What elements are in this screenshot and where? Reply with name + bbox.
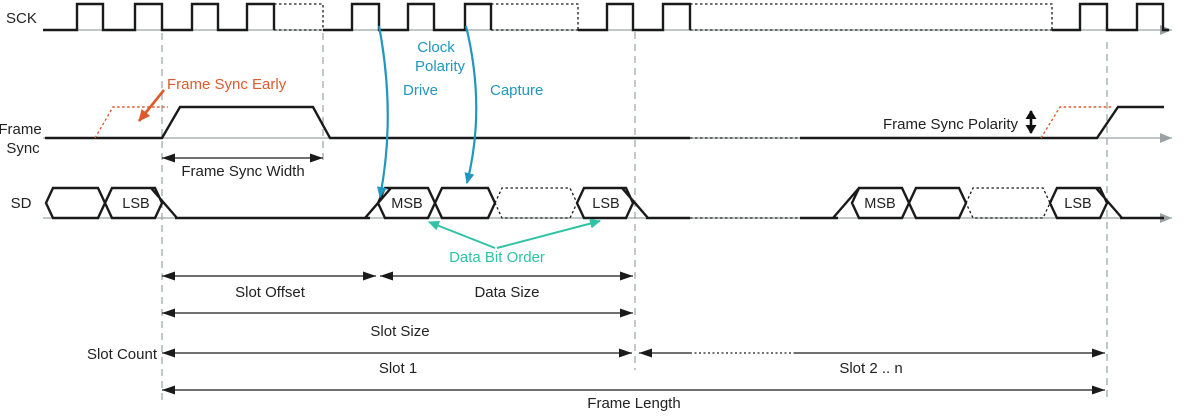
frame-sync-label-line1: Frame (0, 121, 42, 138)
timing-diagram: SCK Frame Sync SD Frame Sync Early Clock… (0, 0, 1184, 416)
sd-label: SD (11, 195, 32, 212)
sd-cell-slot1-lsb: LSB (592, 196, 619, 212)
guide-lines (162, 32, 1107, 400)
frame-length-label: Frame Length (587, 395, 680, 412)
clock-polarity-label-line2: Polarity (415, 58, 466, 75)
data-bit-order-label: Data Bit Order (449, 249, 545, 266)
slot1-label: Slot 1 (379, 360, 417, 377)
drive-edge-arrow (379, 26, 388, 197)
data-size-label: Data Size (474, 284, 539, 301)
sck-waveform (43, 4, 1169, 30)
frame-sync-width-label: Frame Sync Width (181, 163, 304, 180)
clock-polarity-label-line1: Clock (417, 39, 455, 56)
capture-edge-arrow (466, 26, 476, 183)
drive-label: Drive (403, 82, 438, 99)
labels: SCK Frame Sync SD Frame Sync Early Clock… (0, 10, 1092, 412)
slot-offset-label: Slot Offset (235, 284, 306, 301)
sd-cell-slot0-lsb: LSB (122, 196, 149, 212)
slot-size-label: Slot Size (370, 323, 429, 340)
data-bit-order-arrow-lsb (497, 221, 600, 248)
dimension-arrows (162, 158, 1105, 390)
frame-sync-label-line2: Sync (6, 140, 40, 157)
sck-label: SCK (6, 10, 37, 27)
sd-cell-slot2-lsb: LSB (1064, 196, 1091, 212)
sd-cell-slot1-msb: MSB (391, 196, 422, 212)
frame-sync-polarity-label: Frame Sync Polarity (883, 116, 1019, 133)
frame-sync-early-label: Frame Sync Early (167, 76, 287, 93)
timing-diagram-canvas: SCK Frame Sync SD Frame Sync Early Clock… (0, 0, 1184, 416)
sd-cell-slot2-msb: MSB (864, 196, 895, 212)
slot2n-label: Slot 2 .. n (839, 360, 902, 377)
frame-sync-early-arrow (139, 90, 164, 121)
capture-label: Capture (490, 82, 543, 99)
sck-trace (43, 4, 1169, 30)
data-bit-order-arrow-msb (429, 222, 495, 248)
slot-count-label: Slot Count (87, 346, 158, 363)
